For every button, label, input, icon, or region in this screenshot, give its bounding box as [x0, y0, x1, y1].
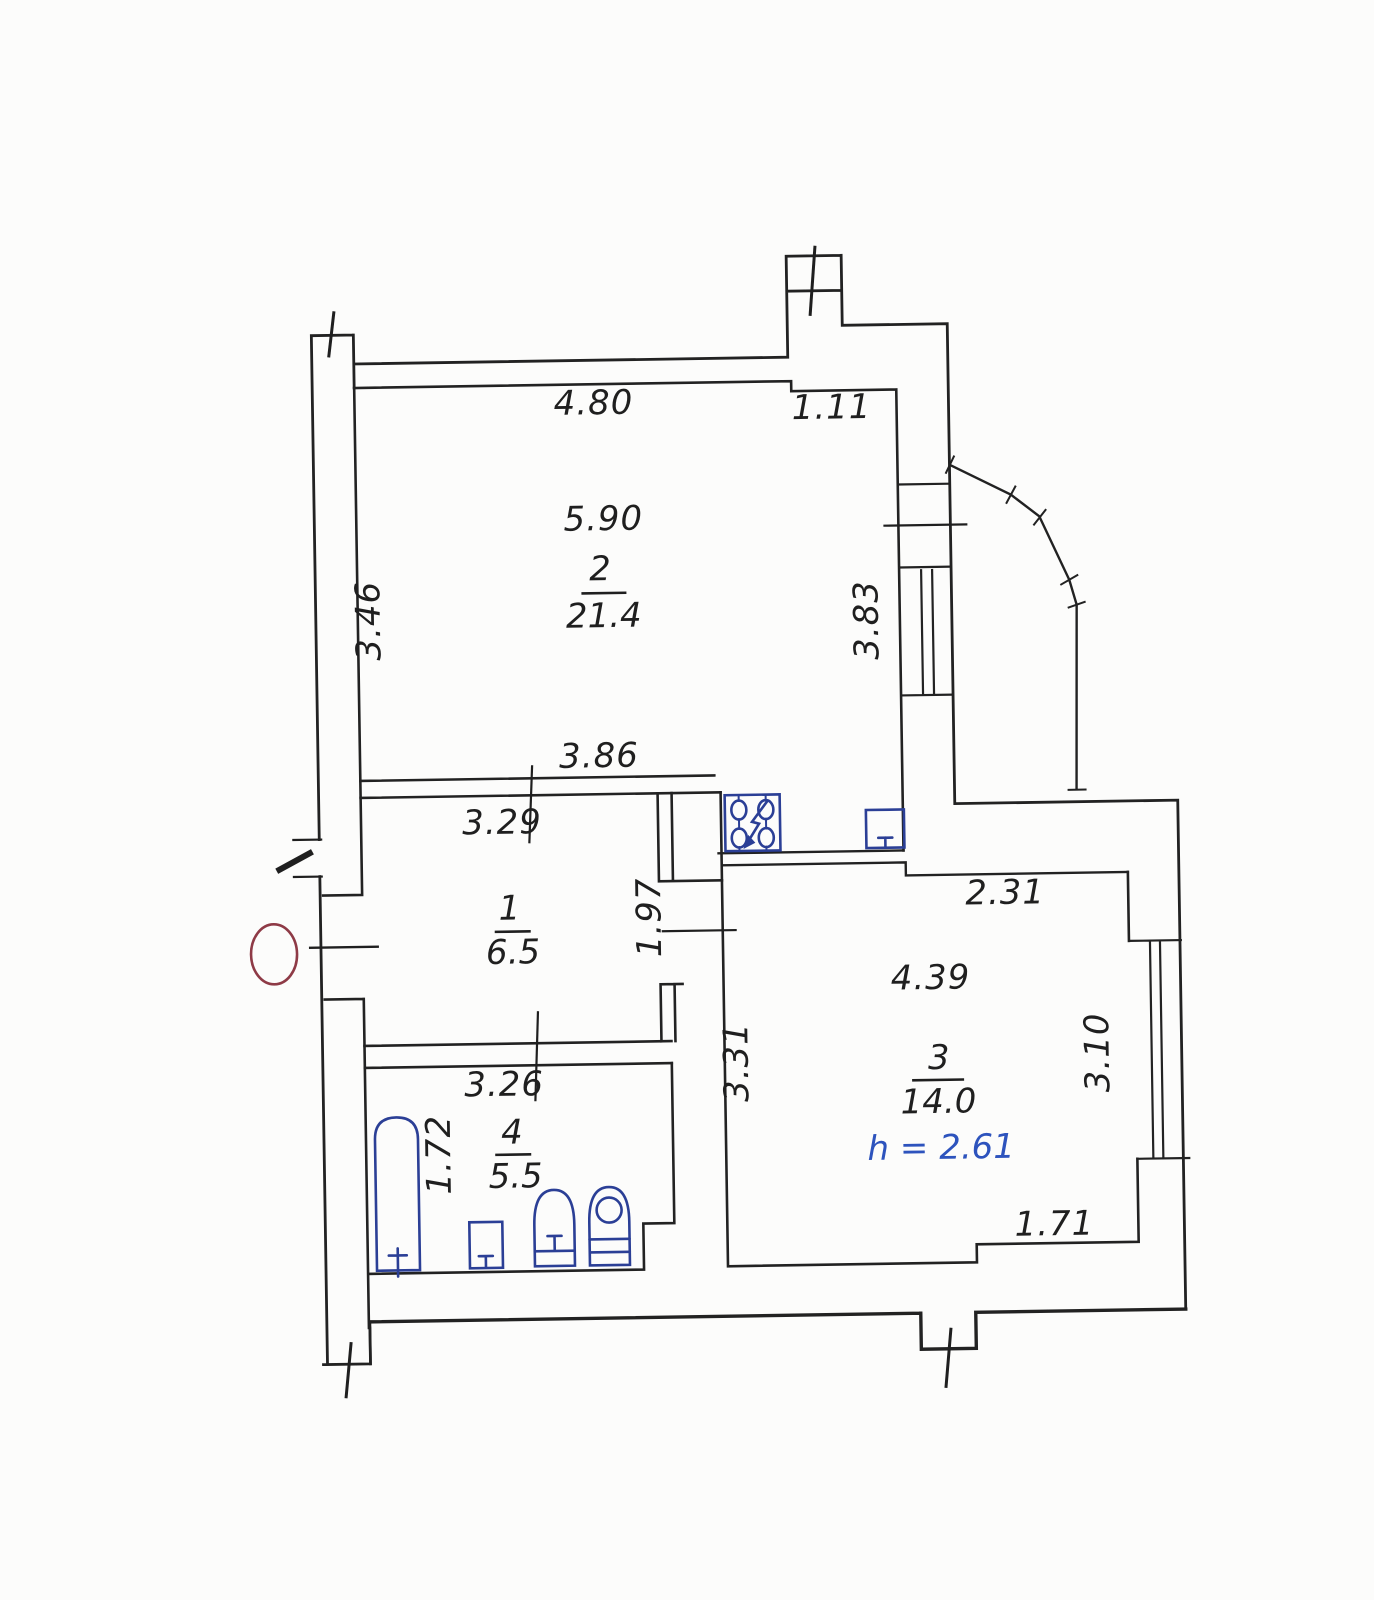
dim-room3-left-height: 3.31 [716, 1022, 757, 1102]
dim-room3-right-height: 3.10 [1077, 1012, 1118, 1092]
floor-plan: 4.80 1.11 5.90 3.46 3.83 3.86 3.29 1.97 … [240, 240, 1194, 1400]
dim-room2-bottom-width: 3.86 [559, 736, 639, 777]
room2-label: 2 21.4 [565, 549, 642, 637]
opening-tick-room2-window [883, 524, 967, 525]
balcony-rail [949, 463, 1079, 792]
room3-walls [721, 786, 1139, 1266]
bathtub-icon [375, 1117, 420, 1277]
ceiling-height-note: h = 2.61 [867, 1127, 1015, 1169]
axis-tick-bottom-left [345, 1342, 352, 1398]
electric-stove-icon [725, 794, 781, 851]
stamp-circle [251, 924, 298, 985]
room3-area: 14.0 [900, 1081, 976, 1122]
room4-label: 4 5.5 [488, 1112, 543, 1197]
room1-label: 1 6.5 [485, 888, 540, 973]
room3-fraction-bar [912, 1080, 964, 1081]
dim-room1-top-width: 3.29 [462, 802, 542, 843]
washbasin-icon [469, 1222, 503, 1269]
room3-label: 3 14.0 [900, 1037, 977, 1122]
toilet-icon [589, 1187, 630, 1266]
dim-passage-opening: 1.97 [629, 877, 670, 957]
dim-room3-bottom-width: 1.71 [1014, 1203, 1094, 1244]
inner-left-wall [315, 388, 370, 1365]
balcony-rail-ticks [945, 454, 1088, 792]
dim-top-niche: 1.11 [791, 387, 871, 428]
room2-area: 21.4 [566, 596, 642, 637]
axis-tick-bottom-right [945, 1328, 952, 1388]
floor-plan-canvas: 4.80 1.11 5.90 3.46 3.83 3.86 3.29 1.97 … [0, 0, 1374, 1600]
room4-number: 4 [501, 1112, 523, 1152]
room1-area: 6.5 [486, 932, 541, 973]
dim-room4-top-width: 3.26 [464, 1064, 544, 1105]
opening-tick-passage [662, 930, 737, 931]
room2-window [898, 484, 953, 696]
wall-break-slash [276, 852, 312, 872]
dim-room2-width: 5.90 [563, 498, 643, 539]
room1-room2-wall [360, 775, 720, 798]
room3-number: 3 [928, 1038, 950, 1078]
room1-number: 1 [498, 888, 520, 928]
room4-area: 5.5 [488, 1156, 543, 1197]
scanned-floor-plan-page: 4.80 1.11 5.90 3.46 3.83 3.86 3.29 1.97 … [0, 0, 1374, 1600]
dim-room3-width: 4.39 [890, 957, 970, 998]
entrance-door-leaf [309, 947, 379, 948]
balcony [945, 454, 1088, 792]
room2-fraction-bar [581, 593, 626, 594]
fixtures [370, 792, 911, 1276]
dim-room2-left-height: 3.46 [348, 581, 389, 661]
bottom-wall [370, 1309, 1186, 1358]
dim-bathtub-length: 1.72 [419, 1115, 460, 1195]
dim-room3-top-width: 2.31 [965, 872, 1045, 913]
dim-top-run: 4.80 [553, 383, 633, 424]
room4-fraction-bar [495, 1154, 531, 1155]
kitchen-sink-icon [866, 809, 905, 848]
room2-number: 2 [589, 549, 611, 589]
dim-room2-right-height: 3.83 [846, 580, 887, 660]
bidet-icon [534, 1190, 575, 1267]
